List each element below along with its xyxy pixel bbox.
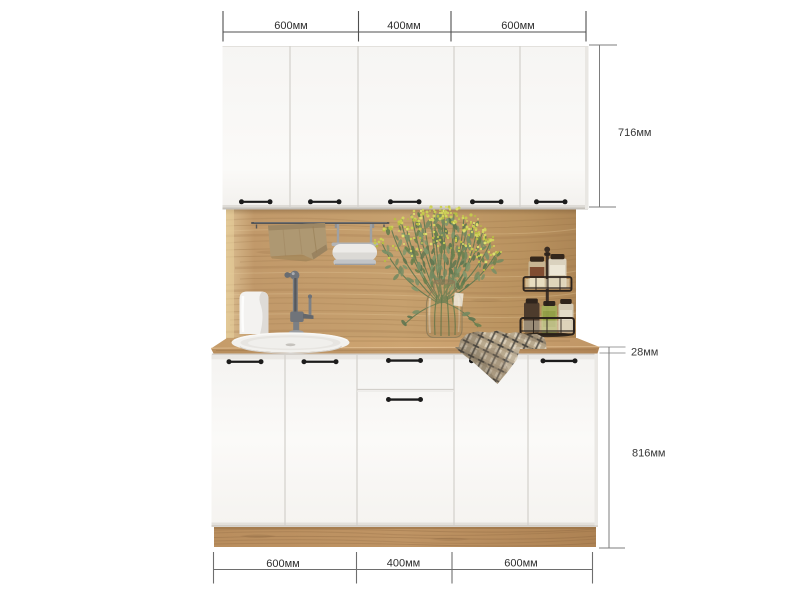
- svg-text:400мм: 400мм: [387, 558, 420, 570]
- svg-text:400мм: 400мм: [387, 20, 420, 32]
- svg-text:600мм: 600мм: [501, 20, 534, 32]
- svg-text:716мм: 716мм: [618, 127, 651, 139]
- svg-text:600мм: 600мм: [274, 20, 307, 32]
- svg-text:816мм: 816мм: [632, 448, 665, 460]
- svg-text:600мм: 600мм: [266, 558, 299, 570]
- svg-text:28мм: 28мм: [631, 347, 658, 359]
- svg-text:600мм: 600мм: [504, 558, 537, 570]
